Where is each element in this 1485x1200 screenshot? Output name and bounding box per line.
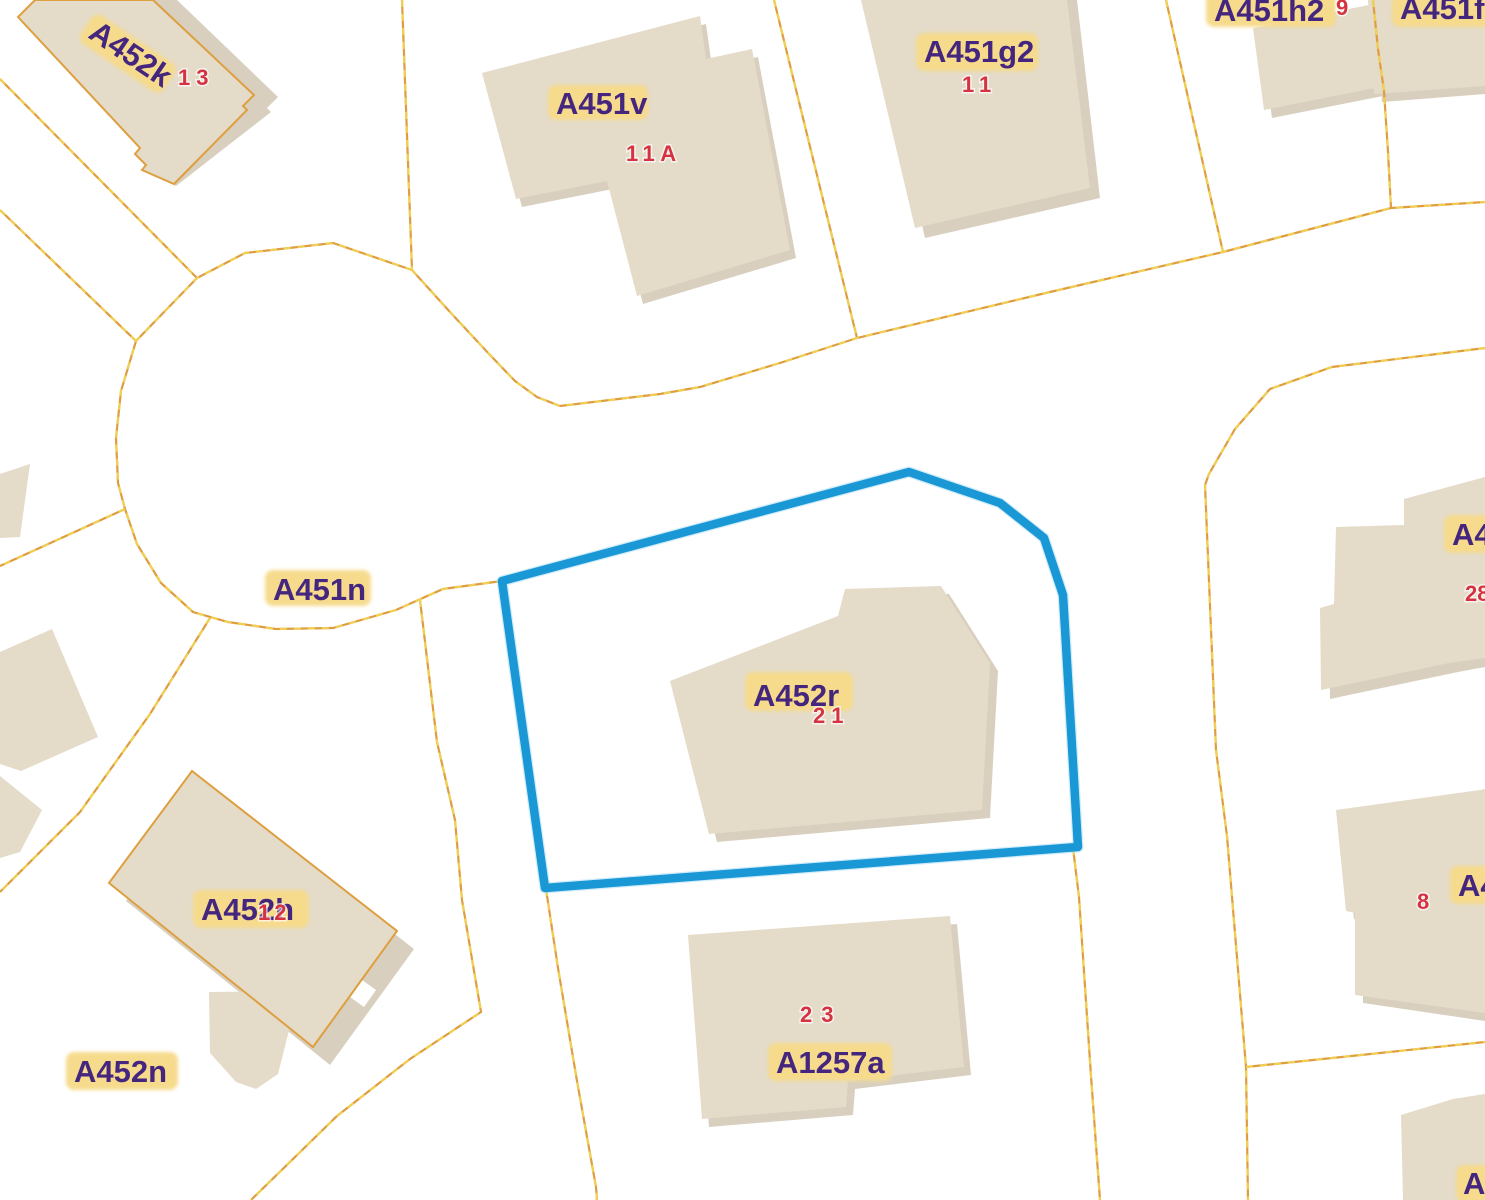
svg-text:A451g2: A451g2 (924, 34, 1034, 69)
svg-text:A451d: A451d (1452, 517, 1485, 552)
svg-text:23: 23 (800, 1002, 842, 1027)
svg-text:A451v: A451v (556, 86, 648, 121)
svg-text:A1257a: A1257a (776, 1045, 885, 1080)
svg-text:11A: 11A (626, 141, 682, 166)
svg-text:A451n: A451n (273, 572, 366, 607)
svg-text:11: 11 (962, 72, 997, 97)
svg-text:8: 8 (1417, 889, 1429, 914)
svg-text:A451h2: A451h2 (1214, 0, 1324, 28)
svg-text:A45: A45 (1463, 1166, 1485, 1200)
svg-text:13: 13 (178, 65, 214, 90)
svg-text:21: 21 (813, 703, 849, 728)
svg-text:A451f2: A451f2 (1400, 0, 1485, 26)
svg-text:A452: A452 (1458, 868, 1485, 903)
svg-text:12: 12 (258, 900, 290, 925)
svg-text:9: 9 (1336, 0, 1348, 20)
svg-text:A452n: A452n (74, 1054, 167, 1089)
svg-text:28: 28 (1465, 581, 1485, 606)
